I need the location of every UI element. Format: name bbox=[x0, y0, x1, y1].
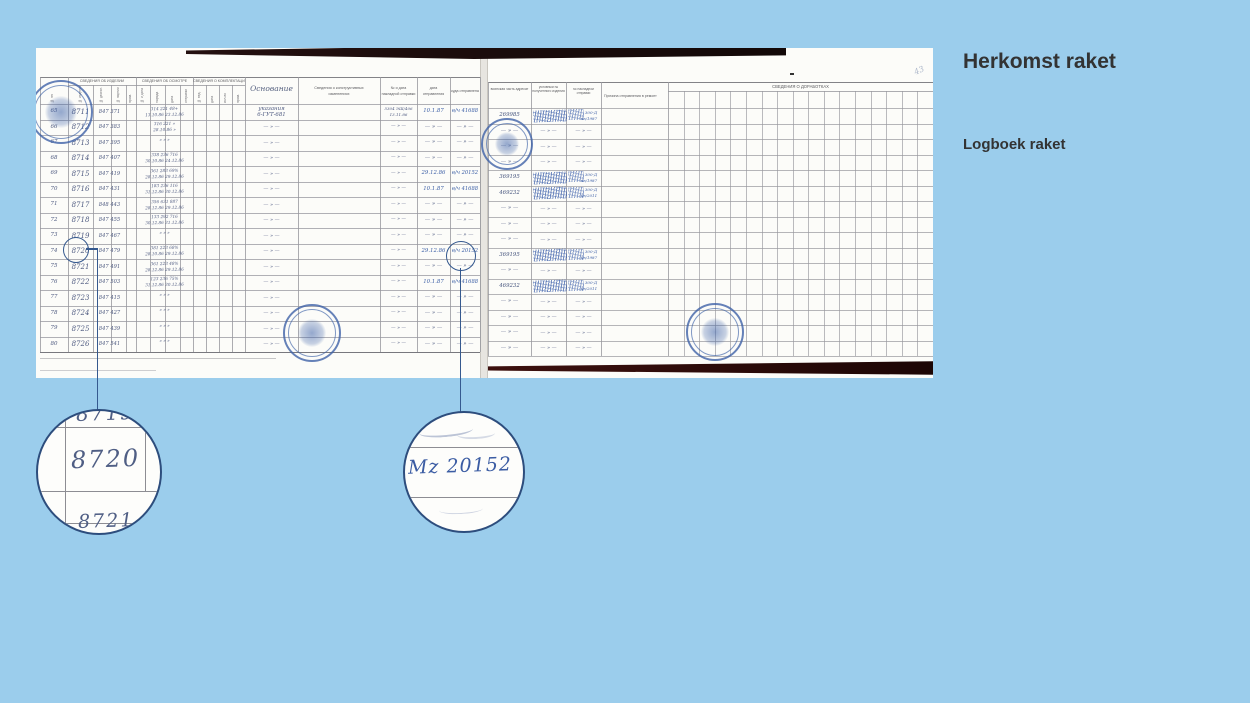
faint-handwriting bbox=[439, 504, 483, 515]
cell-inspection: 123 236 75% bbox=[136, 276, 193, 282]
cell-osnovanie: — » — bbox=[245, 186, 298, 192]
grid-line bbox=[668, 91, 933, 92]
cell-osnovanie: указания bbox=[245, 106, 298, 112]
cell-inspection: 31.12.86 30.12.86 bbox=[136, 282, 193, 288]
cell-waybill: 13.11.86 bbox=[380, 112, 417, 117]
cell-osnovanie: 6-ГУТ-681 bbox=[245, 112, 298, 118]
cell-receipt: 300-Д bbox=[580, 172, 602, 177]
column-header: № двигат. bbox=[99, 86, 103, 103]
cell-receipt: — » — bbox=[566, 221, 601, 227]
grid-line bbox=[40, 259, 480, 260]
cell-serial-number: 8722 bbox=[68, 278, 93, 286]
cell-inspection: » » » bbox=[136, 307, 193, 313]
cell-ship-date: — » — bbox=[417, 341, 450, 347]
grid-line bbox=[917, 91, 918, 356]
cell-inspection: 133 292 716 bbox=[136, 214, 193, 220]
cell-receipt: — » — bbox=[531, 206, 566, 212]
cell-receipt: кв/1987 bbox=[576, 116, 602, 121]
grid-line bbox=[40, 337, 480, 338]
cell-waybill: — » — bbox=[380, 202, 417, 207]
cell-destination-unit: — » — bbox=[450, 294, 480, 300]
cell-receipt: 300-Д bbox=[580, 110, 602, 115]
cell-inspection: » » » bbox=[136, 136, 193, 142]
cell-factory-number: 847 467 bbox=[93, 233, 126, 239]
column-header: прим. bbox=[236, 86, 240, 103]
cell-inspection: 13.10.86 23.12.86 bbox=[136, 111, 193, 117]
cell-osnovanie: — » — bbox=[245, 295, 298, 301]
grid-line bbox=[40, 213, 480, 214]
cell-inspection: 28.12.86 29.12.86 bbox=[136, 173, 193, 179]
cell-receipt: — » — bbox=[566, 299, 601, 305]
cell-recipient: — » — bbox=[488, 345, 531, 351]
cell-inspection: » » » bbox=[136, 229, 193, 235]
cell-receipt: — » — bbox=[566, 159, 601, 165]
grid-line bbox=[219, 85, 220, 352]
cell-serial-number: 8715 bbox=[68, 170, 93, 178]
grid-line bbox=[40, 370, 156, 371]
magnified-serial: 8720 bbox=[71, 444, 141, 474]
grid-line bbox=[886, 91, 887, 356]
grid-line bbox=[40, 120, 480, 121]
grid-line bbox=[855, 91, 856, 356]
cell-ship-date: 10.1.87 bbox=[417, 186, 450, 192]
column-group-header: СВЕДЕНИЯ О КОМПЛЕКТАЦИИ bbox=[193, 79, 245, 83]
circular-stamp bbox=[686, 303, 744, 361]
grid-line bbox=[488, 124, 933, 125]
magnified-callout-serial: 8719 8720 8721 bbox=[36, 409, 162, 535]
cell-waybill: — » — bbox=[380, 155, 417, 160]
column-header: Сведения о конструктивных bbox=[298, 86, 380, 90]
cell-inspection: 28.10.86 » bbox=[136, 127, 193, 133]
grid-line bbox=[684, 91, 685, 356]
grid-line bbox=[488, 201, 933, 202]
cell-recipient: — » — bbox=[488, 221, 531, 227]
column-group-header: СВЕДЕНИЯ О ДОРАБОТКАХ bbox=[668, 84, 933, 89]
cell-inspection: 361 283 69% bbox=[136, 167, 193, 173]
cell-waybill: — » — bbox=[380, 341, 417, 346]
cell-osnovanie: — » — bbox=[245, 124, 298, 130]
column-header: № партии bbox=[116, 86, 120, 103]
highlight-circle-serial bbox=[63, 237, 89, 263]
grid-line bbox=[40, 244, 480, 245]
cell-row-number: 69 bbox=[40, 170, 68, 176]
grid-line bbox=[40, 197, 480, 198]
cell-destination-unit: в/ч 41688 bbox=[450, 279, 480, 285]
column-header: условный № полученного изделия bbox=[531, 86, 566, 93]
magnified-callout-unit: Mz 20152 bbox=[403, 411, 525, 533]
cell-destination-unit: в/ч 41688 bbox=[450, 186, 480, 192]
cell-factory-number: 847 371 bbox=[93, 109, 126, 115]
column-header: отправки bbox=[184, 86, 188, 103]
cell-row-number: 70 bbox=[40, 186, 68, 192]
callout-connector bbox=[460, 268, 462, 415]
cell-waybill: — » — bbox=[380, 264, 417, 269]
grid-line bbox=[762, 91, 763, 356]
cell-receipt: 300-Д bbox=[580, 187, 602, 192]
cell-inspection: 28.10.86 29.12.86 bbox=[136, 251, 193, 257]
cell-row-number: 79 bbox=[40, 325, 68, 331]
cell-ship-date: — » — bbox=[417, 294, 450, 300]
cell-receipt: — » — bbox=[566, 345, 601, 351]
cell-ship-date: — » — bbox=[417, 325, 450, 331]
grid-line bbox=[488, 155, 933, 156]
column-header: Причина отправления в ремонт bbox=[604, 94, 666, 98]
cell-row-number: 72 bbox=[40, 217, 68, 223]
cell-receipt: кв/1987 bbox=[576, 255, 602, 260]
grid-line bbox=[40, 135, 480, 136]
column-header-osnovanie: Основание bbox=[245, 84, 298, 93]
slide-subtitle: Logboek raket bbox=[963, 136, 1066, 153]
grid-line bbox=[40, 182, 480, 183]
column-header: № и дата bbox=[140, 86, 144, 103]
cell-destination-unit: в/ч 41688 bbox=[450, 108, 480, 114]
cell-ship-date: 10.1.87 bbox=[417, 108, 450, 114]
cell-osnovanie: — » — bbox=[245, 171, 298, 177]
grid-line bbox=[40, 166, 480, 167]
cell-row-number: 78 bbox=[40, 310, 68, 316]
column-header: изменениях bbox=[298, 92, 380, 96]
grid-line bbox=[40, 358, 276, 359]
cell-receipt: 300-Д bbox=[580, 280, 602, 285]
grid-line bbox=[40, 290, 480, 291]
cell-factory-number: 847 419 bbox=[93, 171, 126, 177]
cell-receipt: — » — bbox=[566, 237, 601, 243]
cell-inspection: » » » bbox=[136, 322, 193, 328]
cell-ship-date: — » — bbox=[417, 124, 450, 130]
cell-recipient: — » — bbox=[488, 329, 531, 335]
cell-ship-date: — » — bbox=[417, 155, 450, 161]
ink-stamp-imprint bbox=[533, 279, 567, 292]
grid-line bbox=[488, 139, 933, 140]
cell-factory-number: 847 431 bbox=[93, 186, 126, 192]
slide-title: Herkomst raket bbox=[963, 50, 1116, 74]
cell-recipient: 369195 bbox=[488, 252, 531, 258]
callout-connector bbox=[97, 248, 99, 411]
grid-line bbox=[40, 151, 480, 152]
cell-serial-number: 8724 bbox=[68, 309, 93, 317]
circular-stamp bbox=[481, 118, 533, 170]
cell-serial-number: 8721 bbox=[68, 263, 93, 271]
cell-destination-unit: — » — bbox=[450, 139, 480, 145]
cell-waybill: — » — bbox=[380, 295, 417, 300]
cell-serial-number: 8716 bbox=[68, 185, 93, 193]
cell-row-number: 73 bbox=[40, 232, 68, 238]
cell-ship-date: — » — bbox=[417, 139, 450, 145]
column-header: куда отправлена bbox=[450, 89, 480, 93]
cell-receipt: — » — bbox=[566, 144, 601, 150]
cell-receipt: — » — bbox=[531, 299, 566, 305]
cell-inspection: » » » bbox=[136, 338, 193, 344]
cell-waybill: — » — bbox=[380, 217, 417, 222]
cell-receipt: — » — bbox=[566, 314, 601, 320]
grid-line bbox=[746, 91, 747, 356]
grid-line bbox=[839, 91, 840, 356]
column-header: № вед. bbox=[197, 86, 201, 103]
cell-serial-number: 8717 bbox=[68, 201, 93, 209]
grid-line bbox=[126, 85, 127, 352]
cell-ship-date: — » — bbox=[417, 217, 450, 223]
cell-receipt: 300-Д bbox=[580, 249, 602, 254]
cell-recipient: 469232 bbox=[488, 190, 531, 196]
grid-line bbox=[40, 228, 480, 229]
scanned-document: СВЕДЕНИЯ ОБ ИЗДЕЛИИСВЕДЕНИЯ ОБ ОСМОТРЕСВ… bbox=[36, 48, 933, 378]
cell-factory-number: 847 383 bbox=[93, 124, 126, 130]
column-group-header: СВЕДЕНИЯ ОБ ИЗДЕЛИИ bbox=[68, 79, 136, 83]
scan-speck bbox=[790, 73, 794, 75]
cell-recipient: — » — bbox=[488, 314, 531, 320]
cell-serial-number: 8718 bbox=[68, 216, 93, 224]
cell-receipt: — » — bbox=[531, 144, 566, 150]
cell-waybill: 5304 ЭШ/406 bbox=[380, 106, 417, 111]
grid-line bbox=[488, 232, 933, 233]
grid-line bbox=[40, 275, 480, 276]
cell-waybill: — » — bbox=[380, 140, 417, 145]
grid-line bbox=[232, 85, 233, 352]
cell-waybill: — » — bbox=[380, 248, 417, 253]
cell-row-number: 80 bbox=[40, 341, 68, 347]
cell-recipient: 269985 bbox=[488, 112, 531, 118]
cell-factory-number: 847 395 bbox=[93, 140, 126, 146]
cell-ship-date: 29.12.86 bbox=[417, 248, 450, 254]
grid-line bbox=[193, 77, 194, 352]
cell-destination-unit: — » — bbox=[450, 232, 480, 238]
cell-osnovanie: — » — bbox=[245, 279, 298, 285]
cell-inspection: 30.12.86 31.12.86 bbox=[136, 220, 193, 226]
cell-receipt: кв/2011 bbox=[576, 286, 602, 291]
cell-osnovanie: — » — bbox=[245, 217, 298, 223]
cell-inspection: 338 236 716 bbox=[136, 152, 193, 158]
cell-osnovanie: — » — bbox=[245, 202, 298, 208]
grid-line bbox=[206, 85, 207, 352]
cell-osnovanie: — » — bbox=[245, 248, 298, 254]
cell-inspection: 361 223 48% bbox=[136, 260, 193, 266]
cell-waybill: — » — bbox=[380, 124, 417, 129]
ink-stamp-imprint bbox=[533, 109, 567, 122]
highlight-circle-unit bbox=[446, 241, 476, 271]
slide: СВЕДЕНИЯ ОБ ИЗДЕЛИИСВЕДЕНИЯ ОБ ОСМОТРЕСВ… bbox=[0, 0, 1250, 703]
grid-line bbox=[480, 77, 481, 352]
cell-inspection: 381 223 68% bbox=[136, 245, 193, 251]
cell-waybill: — » — bbox=[380, 186, 417, 191]
cell-waybill: — » — bbox=[380, 326, 417, 331]
cell-row-number: 76 bbox=[40, 279, 68, 285]
ink-stamp-imprint bbox=[533, 171, 567, 184]
grid-line bbox=[488, 294, 933, 295]
cell-receipt: — » — bbox=[566, 206, 601, 212]
grid-line bbox=[808, 91, 809, 356]
cell-osnovanie: — » — bbox=[245, 155, 298, 161]
grid-line bbox=[777, 91, 778, 356]
cell-row-number: 75 bbox=[40, 263, 68, 269]
cell-receipt: кв/2011 bbox=[576, 193, 602, 198]
column-header: дата bbox=[417, 86, 450, 90]
column-header: воинская часть адресат bbox=[488, 88, 531, 92]
cell-row-number: 68 bbox=[40, 155, 68, 161]
cell-inspection: 183 236 116 bbox=[136, 183, 193, 189]
column-header: накладной отправки bbox=[380, 92, 417, 96]
cell-destination-unit: — » — bbox=[450, 124, 480, 130]
cell-receipt: — » — bbox=[531, 237, 566, 243]
column-header: прим. bbox=[128, 86, 132, 103]
magnified-serial-below: 8721 bbox=[78, 509, 135, 533]
cell-destination-unit: — » — bbox=[450, 155, 480, 161]
cell-receipt: — » — bbox=[531, 221, 566, 227]
cell-recipient: 469232 bbox=[488, 283, 531, 289]
cell-waybill: — » — bbox=[380, 279, 417, 284]
column-header: № накладной отправки bbox=[566, 88, 601, 95]
magnified-serial-above: 8719 bbox=[76, 409, 136, 426]
cell-destination-unit: — » — bbox=[450, 201, 480, 207]
cell-serial-number: 8725 bbox=[68, 325, 93, 333]
cell-inspection: 28.12.86 29.12.86 bbox=[136, 266, 193, 272]
cell-inspection: 316 221 » bbox=[136, 121, 193, 127]
cell-destination-unit: в/ч 20152 bbox=[450, 170, 480, 176]
cell-recipient: — » — bbox=[488, 205, 531, 211]
grid-line bbox=[40, 321, 480, 322]
cell-serial-number: 8723 bbox=[68, 294, 93, 302]
cell-row-number: 71 bbox=[40, 201, 68, 207]
cell-destination-unit: — » — bbox=[450, 217, 480, 223]
cell-factory-number: 848 443 bbox=[93, 202, 126, 208]
cell-recipient: — » — bbox=[488, 298, 531, 304]
cell-inspection: 31.12.86 30.12.86 bbox=[136, 189, 193, 195]
cell-serial-number: 8726 bbox=[68, 340, 93, 348]
grid-line bbox=[488, 217, 933, 218]
cell-ship-date: — » — bbox=[417, 201, 450, 207]
grid-line bbox=[902, 91, 903, 356]
cell-ship-date: — » — bbox=[417, 310, 450, 316]
grid-line bbox=[488, 263, 933, 264]
grid-line bbox=[40, 352, 480, 353]
column-header: дата bbox=[210, 86, 214, 103]
cell-receipt: — » — bbox=[531, 268, 566, 274]
grid-line bbox=[824, 91, 825, 356]
ink-stamp-imprint bbox=[533, 248, 567, 261]
cell-receipt: — » — bbox=[531, 314, 566, 320]
cell-waybill: — » — bbox=[380, 233, 417, 238]
circular-stamp bbox=[283, 304, 341, 362]
cell-receipt: — » — bbox=[531, 159, 566, 165]
cell-destination-unit: — » — bbox=[450, 310, 480, 316]
cell-destination-unit: — » — bbox=[450, 341, 480, 347]
cell-factory-number: 847 407 bbox=[93, 155, 126, 161]
cell-receipt: — » — bbox=[531, 330, 566, 336]
cell-inspection: 356 631 887 bbox=[136, 198, 193, 204]
column-group-header: СВЕДЕНИЯ ОБ ОСМОТРЕ bbox=[136, 79, 193, 83]
grid-line bbox=[871, 91, 872, 356]
cell-osnovanie: — » — bbox=[245, 140, 298, 146]
cell-receipt: — » — bbox=[566, 330, 601, 336]
cell-waybill: — » — bbox=[380, 171, 417, 176]
logbook-table-layer: СВЕДЕНИЯ ОБ ИЗДЕЛИИСВЕДЕНИЯ ОБ ОСМОТРЕСВ… bbox=[36, 48, 933, 378]
cell-ship-date: 10.1.87 bbox=[417, 279, 450, 285]
cell-osnovanie: — » — bbox=[245, 233, 298, 239]
cell-factory-number: 847 455 bbox=[93, 217, 126, 223]
cell-receipt: кв/1987 bbox=[576, 178, 602, 183]
cell-receipt: — » — bbox=[566, 268, 601, 274]
cell-receipt: — » — bbox=[531, 128, 566, 134]
ink-stamp-imprint bbox=[533, 186, 567, 199]
grid-line bbox=[793, 91, 794, 356]
cell-inspection: » » » bbox=[136, 291, 193, 297]
cell-waybill: — » — bbox=[380, 310, 417, 315]
cell-ship-date: — » — bbox=[417, 263, 450, 269]
column-header: отправления bbox=[417, 92, 450, 96]
column-header: № и дата bbox=[380, 86, 417, 90]
magnified-unit-number: Mz 20152 bbox=[408, 453, 513, 479]
cell-ship-date: 29.12.86 bbox=[417, 170, 450, 176]
column-header: кол-во bbox=[223, 86, 227, 103]
cell-inspection: 30.10.86 24.12.86 bbox=[136, 158, 193, 164]
column-header: дата bbox=[170, 86, 174, 103]
cell-receipt: — » — bbox=[531, 345, 566, 351]
grid-line bbox=[40, 306, 480, 307]
cell-recipient: — » — bbox=[488, 236, 531, 242]
cell-inspection: 28.12.86 29.12.86 bbox=[136, 204, 193, 210]
cell-receipt: — » — bbox=[566, 128, 601, 134]
cell-recipient: — » — bbox=[488, 267, 531, 273]
cell-osnovanie: — » — bbox=[245, 264, 298, 270]
column-header: наряда bbox=[155, 86, 159, 103]
cell-row-number: 77 bbox=[40, 294, 68, 300]
cell-ship-date: — » — bbox=[417, 232, 450, 238]
cell-inspection: 314 221 48+ bbox=[136, 105, 193, 111]
cell-recipient: 369195 bbox=[488, 174, 531, 180]
cell-destination-unit: — » — bbox=[450, 325, 480, 331]
cell-serial-number: 8714 bbox=[68, 154, 93, 162]
